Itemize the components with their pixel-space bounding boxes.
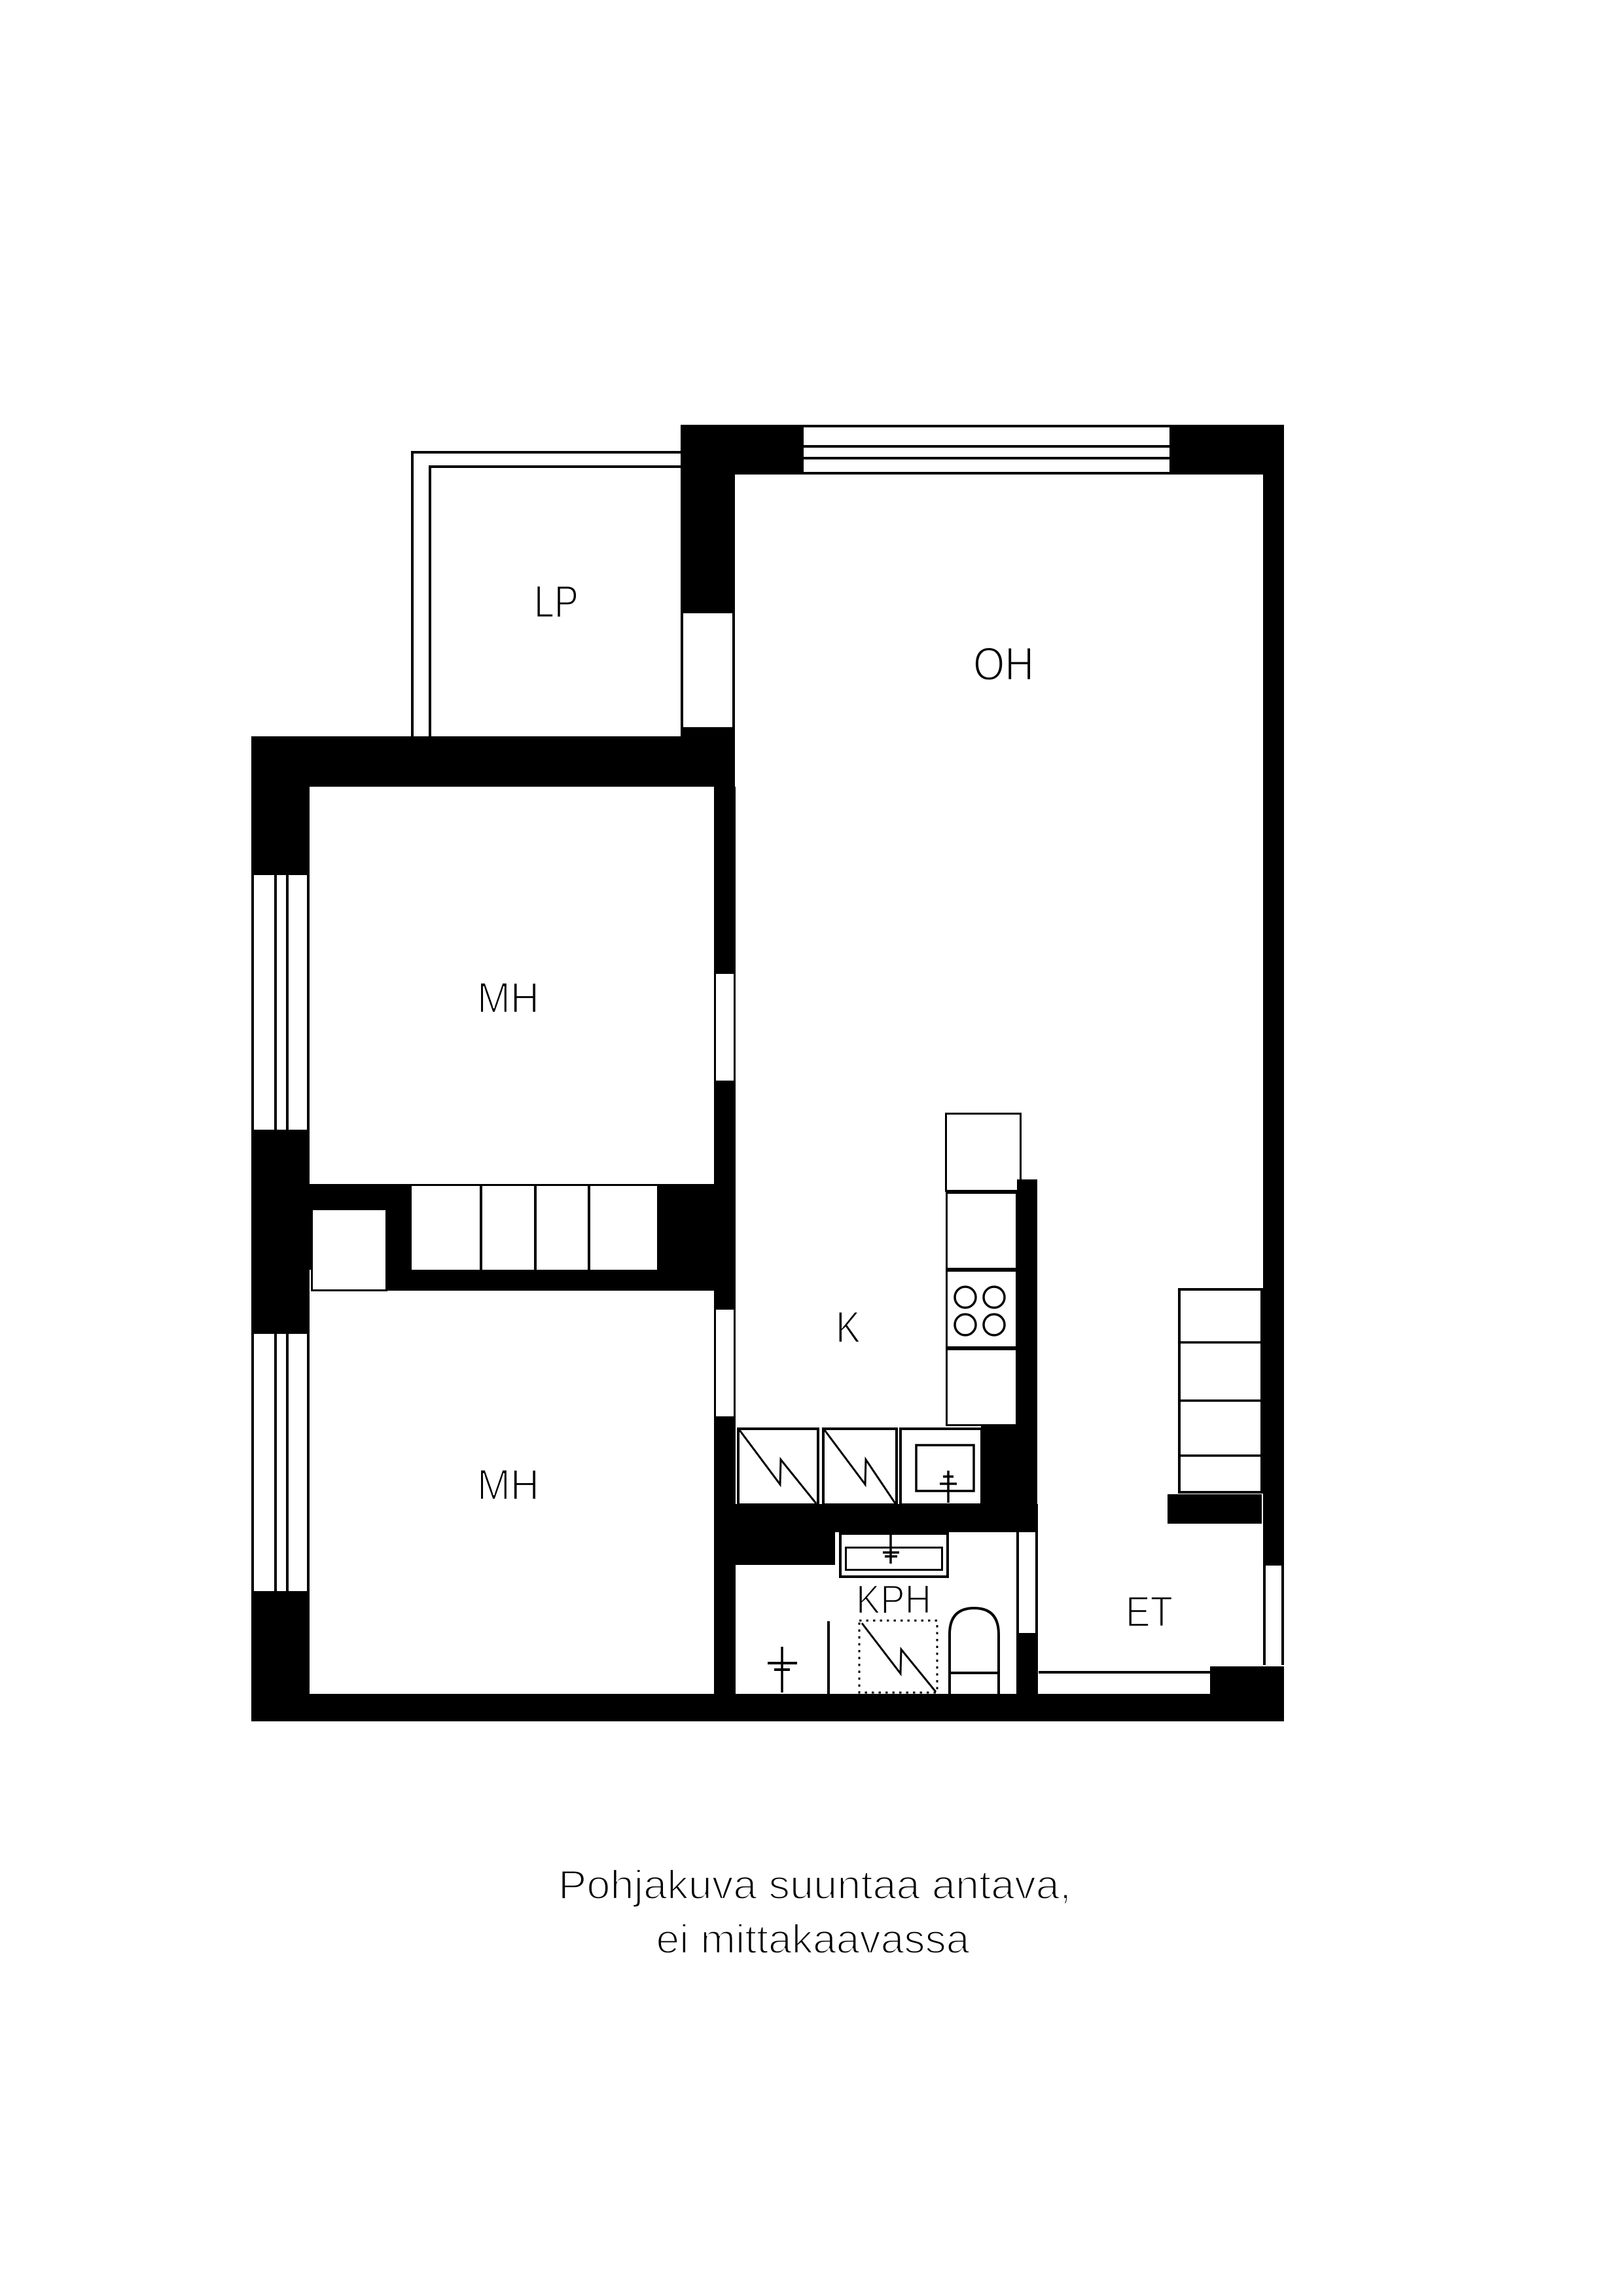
svg-text:LP: LP — [534, 576, 579, 627]
svg-text:KPH: KPH — [856, 1577, 931, 1623]
svg-text:MH: MH — [477, 973, 539, 1022]
svg-text:OH: OH — [973, 639, 1034, 691]
svg-text:MH: MH — [477, 1460, 539, 1509]
svg-text:Pohjakuva suuntaa antava,: Pohjakuva suuntaa antava, — [558, 1863, 1071, 1908]
svg-text:ET: ET — [1126, 1587, 1173, 1636]
svg-text:K: K — [836, 1302, 861, 1352]
svg-text:ei mittakaavassa: ei mittakaavassa — [656, 1917, 971, 1962]
